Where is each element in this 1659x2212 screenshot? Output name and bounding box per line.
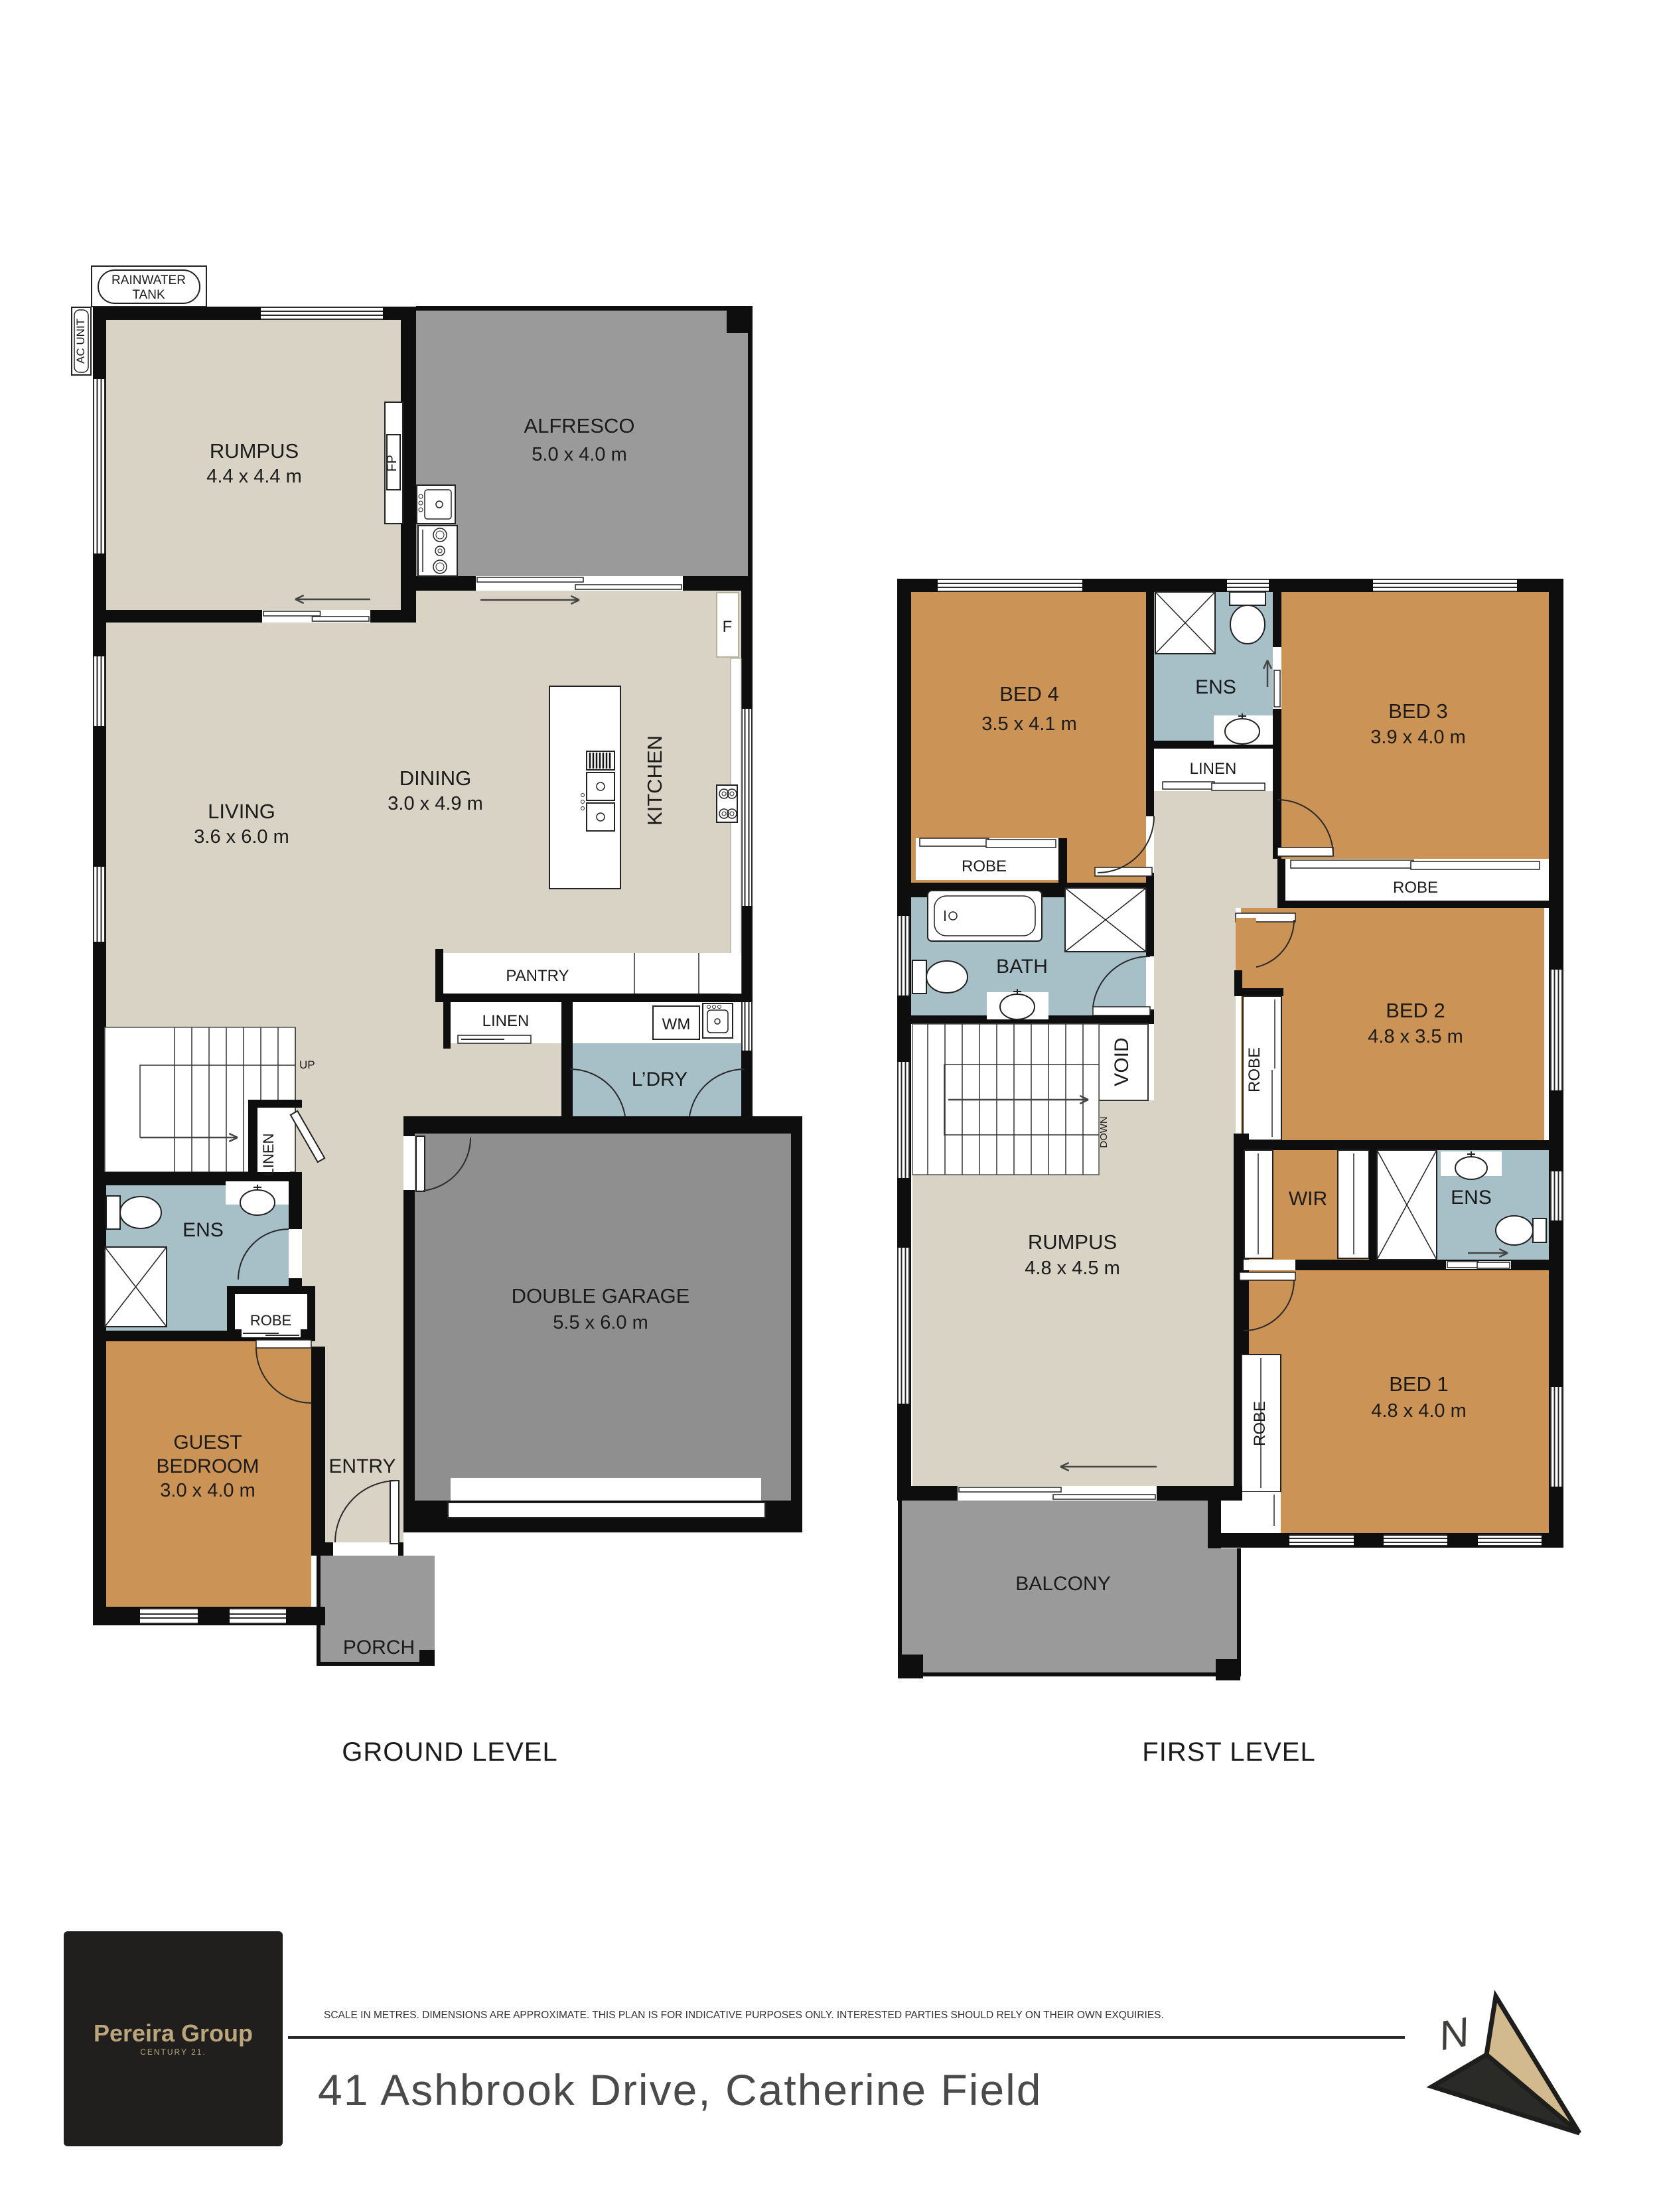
svg-text:KITCHEN: KITCHEN bbox=[643, 735, 666, 826]
svg-text:LIVING: LIVING bbox=[208, 800, 275, 823]
svg-text:4.4 x 4.4 m: 4.4 x 4.4 m bbox=[206, 466, 301, 487]
svg-text:BED 1: BED 1 bbox=[1389, 1372, 1449, 1396]
svg-text:ENS: ENS bbox=[1451, 1187, 1492, 1209]
svg-text:ALFRESCO: ALFRESCO bbox=[524, 414, 634, 437]
svg-text:CENTURY 21.: CENTURY 21. bbox=[140, 2047, 206, 2057]
svg-text:ENS: ENS bbox=[1195, 676, 1236, 698]
svg-text:Pereira Group: Pereira Group bbox=[94, 2020, 253, 2047]
svg-text:PANTRY: PANTRY bbox=[506, 967, 569, 985]
svg-text:4.8 x 3.5 m: 4.8 x 3.5 m bbox=[1368, 1026, 1463, 1047]
svg-text:GUEST: GUEST bbox=[173, 1432, 242, 1453]
svg-text:ENS: ENS bbox=[182, 1219, 224, 1241]
svg-text:WM: WM bbox=[662, 1015, 691, 1033]
svg-text:LINEN: LINEN bbox=[482, 1012, 530, 1030]
svg-text:ROBE: ROBE bbox=[1393, 879, 1438, 897]
svg-text:BED 2: BED 2 bbox=[1386, 999, 1445, 1022]
svg-text:L’DRY: L’DRY bbox=[632, 1069, 688, 1090]
svg-text:BALCONY: BALCONY bbox=[1015, 1573, 1110, 1595]
svg-text:RUMPUS: RUMPUS bbox=[1028, 1230, 1117, 1254]
svg-text:RUMPUS: RUMPUS bbox=[210, 439, 299, 463]
svg-text:ENTRY: ENTRY bbox=[328, 1455, 396, 1477]
svg-text:DOWN: DOWN bbox=[1098, 1116, 1110, 1148]
svg-text:FIRST LEVEL: FIRST LEVEL bbox=[1142, 1737, 1315, 1767]
svg-text:FP: FP bbox=[385, 455, 399, 472]
svg-text:PORCH: PORCH bbox=[343, 1637, 415, 1659]
svg-text:AC UNIT: AC UNIT bbox=[74, 319, 87, 364]
svg-text:BED 4: BED 4 bbox=[999, 682, 1059, 705]
svg-text:3.0 x 4.0 m: 3.0 x 4.0 m bbox=[160, 1480, 255, 1501]
svg-text:3.9 x 4.0 m: 3.9 x 4.0 m bbox=[1370, 727, 1465, 748]
svg-text:41 Ashbrook Drive, Catherine F: 41 Ashbrook Drive, Catherine Field bbox=[318, 2065, 1043, 2114]
svg-text:ROBE: ROBE bbox=[962, 857, 1007, 875]
svg-text:BEDROOM: BEDROOM bbox=[156, 1455, 259, 1477]
svg-text:3.5 x 4.1 m: 3.5 x 4.1 m bbox=[981, 713, 1076, 735]
svg-text:3.0 x 4.9 m: 3.0 x 4.9 m bbox=[388, 793, 482, 814]
svg-text:BATH: BATH bbox=[996, 956, 1048, 978]
svg-text:DOUBLE GARAGE: DOUBLE GARAGE bbox=[512, 1284, 690, 1307]
svg-text:5.5 x 6.0 m: 5.5 x 6.0 m bbox=[553, 1312, 648, 1333]
svg-text:F: F bbox=[723, 618, 733, 636]
svg-text:RAINWATER: RAINWATER bbox=[111, 273, 186, 287]
svg-text:5.0 x 4.0 m: 5.0 x 4.0 m bbox=[532, 444, 626, 465]
svg-text:ROBE: ROBE bbox=[250, 1312, 291, 1329]
svg-text:VOID: VOID bbox=[1111, 1037, 1133, 1086]
svg-text:GROUND LEVEL: GROUND LEVEL bbox=[342, 1737, 557, 1767]
svg-text:WIR: WIR bbox=[1289, 1188, 1327, 1210]
svg-text:ROBE: ROBE bbox=[1251, 1401, 1269, 1446]
svg-text:ROBE: ROBE bbox=[1246, 1047, 1263, 1092]
svg-text:4.8 x 4.0 m: 4.8 x 4.0 m bbox=[1371, 1400, 1466, 1422]
svg-text:TANK: TANK bbox=[132, 288, 165, 302]
svg-text:LINEN: LINEN bbox=[1190, 760, 1237, 778]
svg-text:LINEN: LINEN bbox=[260, 1134, 277, 1177]
svg-text:BED 3: BED 3 bbox=[1388, 700, 1448, 723]
svg-text:SCALE IN METRES. DIMENSIONS AR: SCALE IN METRES. DIMENSIONS ARE APPROXIM… bbox=[324, 2010, 1164, 2021]
svg-text:4.8 x 4.5 m: 4.8 x 4.5 m bbox=[1025, 1258, 1119, 1279]
svg-text:DINING: DINING bbox=[399, 767, 472, 790]
svg-text:3.6 x 6.0 m: 3.6 x 6.0 m bbox=[194, 826, 289, 848]
svg-text:UP: UP bbox=[299, 1059, 315, 1071]
